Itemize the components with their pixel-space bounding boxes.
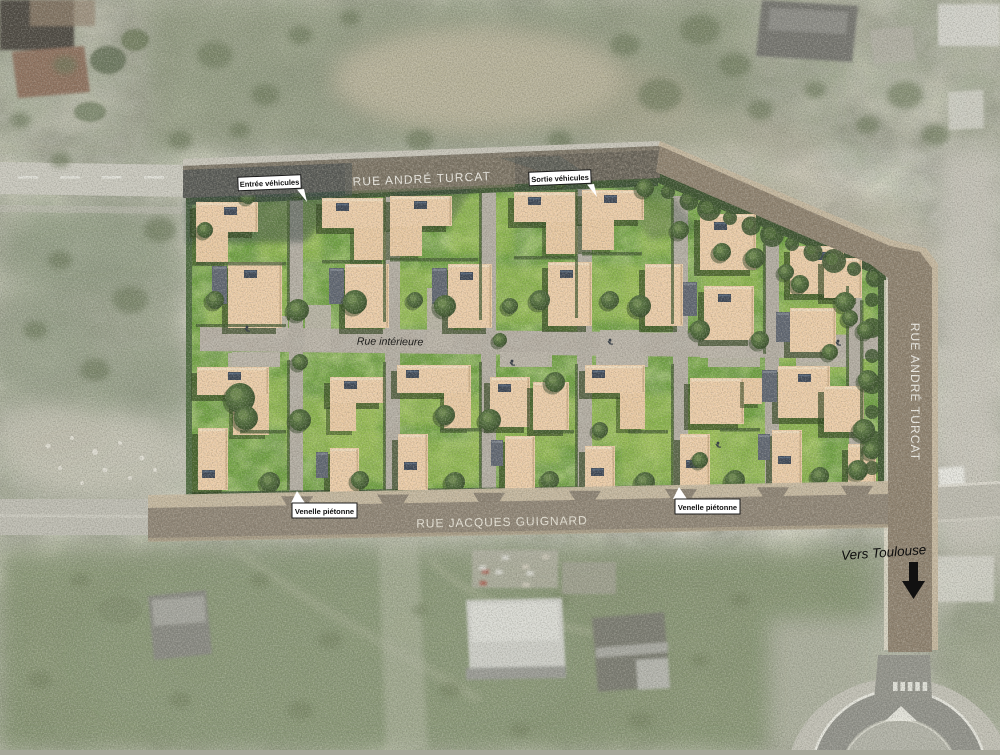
svg-text:Venelle piétonne: Venelle piétonne: [678, 503, 737, 512]
svg-text:Venelle piétonne: Venelle piétonne: [295, 507, 354, 516]
svg-text:Rue intérieure: Rue intérieure: [357, 336, 424, 349]
